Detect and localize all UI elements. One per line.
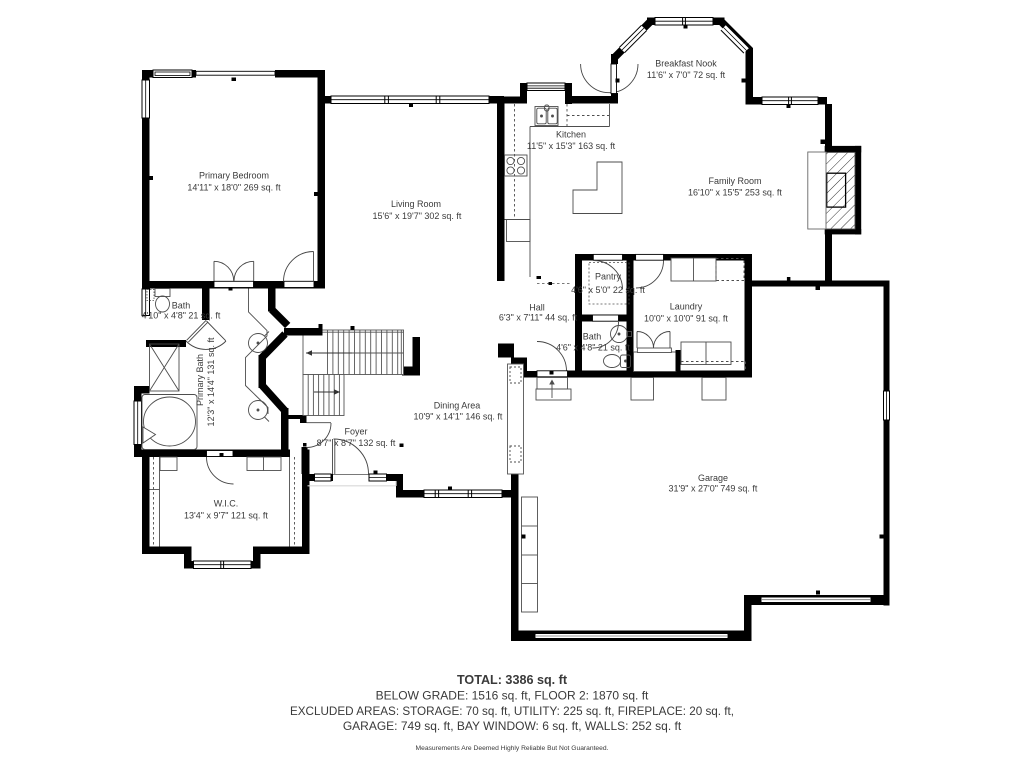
svg-text:Garage: Garage: [698, 473, 728, 483]
svg-text:Kitchen: Kitchen: [556, 130, 586, 140]
svg-text:6'3" x 7'11" 44 sq. ft: 6'3" x 7'11" 44 sq. ft: [499, 313, 578, 323]
svg-text:11'5" x 15'3" 163 sq. ft: 11'5" x 15'3" 163 sq. ft: [527, 141, 616, 151]
svg-text:4'6" x 4'8" 21 sq. ft: 4'6" x 4'8" 21 sq. ft: [556, 343, 630, 353]
svg-text:Foyer: Foyer: [344, 427, 367, 437]
svg-text:Measurements Are Deemed Highly: Measurements Are Deemed Highly Reliable …: [416, 745, 609, 752]
svg-text:10'0" x 10'0" 91 sq. ft: 10'0" x 10'0" 91 sq. ft: [644, 314, 728, 324]
svg-text:15'6" x 19'7" 302 sq. ft: 15'6" x 19'7" 302 sq. ft: [373, 211, 462, 221]
svg-text:31'9" x 27'0" 749 sq. ft: 31'9" x 27'0" 749 sq. ft: [669, 484, 758, 494]
svg-text:11'6" x 7'0" 72 sq. ft: 11'6" x 7'0" 72 sq. ft: [647, 70, 726, 80]
svg-text:4'6" x 5'0" 22 sq. ft: 4'6" x 5'0" 22 sq. ft: [571, 285, 645, 295]
svg-text:TOTAL: 3386 sq. ft: TOTAL: 3386 sq. ft: [457, 673, 568, 687]
svg-text:14'11" x 18'0" 269 sq. ft: 14'11" x 18'0" 269 sq. ft: [187, 183, 281, 193]
svg-text:4'10" x 4'8" 21 sq. ft: 4'10" x 4'8" 21 sq. ft: [142, 311, 221, 321]
svg-text:GARAGE: 749 sq. ft, BAY WINDOW: GARAGE: 749 sq. ft, BAY WINDOW: 6 sq. ft…: [343, 719, 682, 733]
svg-text:12'3" x 14'4" 131 sq. ft: 12'3" x 14'4" 131 sq. ft: [206, 337, 216, 426]
svg-text:EXCLUDED AREAS: STORAGE: 70 sq: EXCLUDED AREAS: STORAGE: 70 sq. ft, UTIL…: [290, 705, 734, 718]
svg-text:BELOW GRADE: 1516 sq. ft, FLOO: BELOW GRADE: 1516 sq. ft, FLOOR 2: 1870 …: [376, 689, 649, 703]
svg-text:Bath: Bath: [583, 332, 602, 342]
svg-text:Primary Bedroom: Primary Bedroom: [199, 171, 269, 181]
svg-text:16'10" x 15'5" 253 sq. ft: 16'10" x 15'5" 253 sq. ft: [688, 188, 782, 198]
svg-text:Family Room: Family Room: [708, 176, 761, 186]
svg-text:Primary Bath: Primary Bath: [195, 354, 205, 406]
svg-text:Dining Area: Dining Area: [434, 401, 481, 411]
svg-text:Hall: Hall: [529, 303, 545, 313]
svg-text:Breakfast Nook: Breakfast Nook: [655, 59, 717, 69]
svg-text:Bath: Bath: [172, 301, 191, 311]
svg-text:Laundry: Laundry: [670, 302, 703, 312]
svg-text:13'4" x 9'7" 121 sq. ft: 13'4" x 9'7" 121 sq. ft: [184, 511, 268, 521]
svg-text:Pantry: Pantry: [595, 272, 622, 282]
svg-text:W.I.C.: W.I.C.: [214, 499, 239, 509]
svg-text:Living Room: Living Room: [391, 199, 441, 209]
svg-text:10'9" x 14'1" 146 sq. ft: 10'9" x 14'1" 146 sq. ft: [414, 412, 503, 422]
svg-text:8'7" x 8'7" 132 sq. ft: 8'7" x 8'7" 132 sq. ft: [317, 438, 396, 448]
